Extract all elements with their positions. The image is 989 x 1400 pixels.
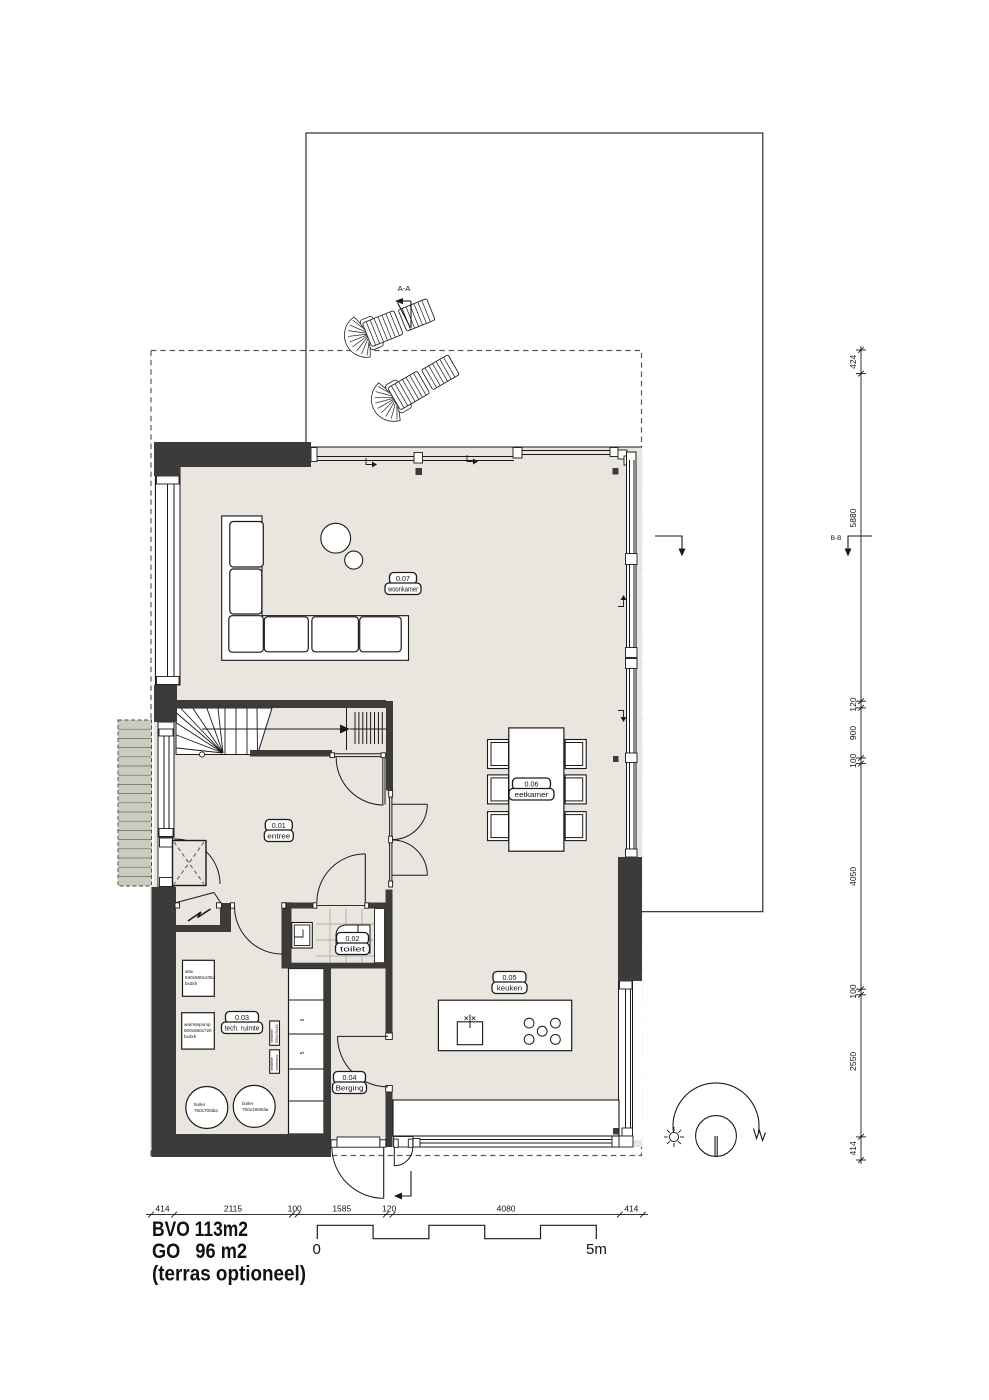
svg-text:wtw: wtw: [185, 969, 194, 974]
svg-text:warmtepomp: warmtepomp: [184, 1022, 211, 1027]
svg-text:0.04: 0.04: [343, 1073, 357, 1082]
svg-text:0.02: 0.02: [346, 934, 360, 943]
svg-text:414: 414: [624, 1204, 638, 1214]
svg-text:vloerverw: vloerverw: [275, 1054, 279, 1071]
svg-text:B-B: B-B: [831, 535, 842, 542]
svg-text:2550: 2550: [848, 1052, 858, 1071]
svg-text:100: 100: [848, 753, 858, 767]
svg-text:0.03: 0.03: [235, 1013, 249, 1022]
svg-text:2115: 2115: [224, 1204, 243, 1214]
svg-text:600x660x720: 600x660x720: [184, 1028, 212, 1033]
svg-text:5880: 5880: [848, 508, 858, 527]
svg-text:4080: 4080: [497, 1204, 516, 1214]
svg-text:0.01: 0.01: [272, 821, 286, 830]
svg-text:bxdxh: bxdxh: [185, 981, 198, 986]
svg-text:0.05: 0.05: [503, 973, 517, 982]
svg-text:120: 120: [382, 1204, 396, 1214]
svg-text:A-A: A-A: [398, 284, 411, 293]
svg-text:100: 100: [848, 984, 858, 998]
svg-text:0.07: 0.07: [396, 574, 410, 583]
svg-text:verdeler: verdeler: [270, 1057, 274, 1071]
svg-text:120: 120: [848, 697, 858, 711]
svg-text:500x75x45: 500x75x45: [275, 1024, 279, 1043]
svg-text:750x1900dia: 750x1900dia: [242, 1107, 269, 1112]
svg-text:keuken: keuken: [497, 984, 522, 993]
svg-text:tech. ruimte: tech. ruimte: [225, 1024, 260, 1033]
svg-text:900: 900: [848, 726, 858, 740]
svg-text:0.06: 0.06: [525, 780, 539, 789]
svg-text:GO 96 m2: GO 96 m2: [152, 1239, 247, 1263]
svg-text:toilet: toilet: [340, 945, 365, 954]
svg-text:(terras optioneel): (terras optioneel): [152, 1262, 306, 1286]
svg-text:414: 414: [848, 1141, 858, 1155]
svg-text:verdeler: verdeler: [270, 1029, 274, 1043]
svg-text:640x580x1064: 640x580x1064: [185, 975, 216, 980]
svg-text:BVO 113m2: BVO 113m2: [152, 1217, 248, 1241]
svg-text:bxdxh: bxdxh: [184, 1034, 197, 1039]
svg-text:5: 5: [300, 1051, 306, 1054]
svg-text:424: 424: [848, 354, 858, 368]
svg-text:eetkamer: eetkamer: [515, 790, 549, 799]
svg-text:0: 0: [313, 1241, 321, 1258]
svg-text:750x700dia: 750x700dia: [194, 1108, 218, 1113]
svg-text:4050: 4050: [848, 867, 858, 886]
svg-text:6: 6: [300, 1018, 306, 1021]
svg-text:5m: 5m: [586, 1241, 607, 1258]
svg-text:boiler: boiler: [194, 1102, 206, 1107]
svg-text:entree: entree: [267, 832, 290, 841]
svg-text:woonkamer: woonkamer: [387, 585, 418, 594]
svg-text:100: 100: [288, 1204, 302, 1214]
svg-text:1585: 1585: [332, 1204, 351, 1214]
svg-text:Berging: Berging: [336, 1084, 364, 1093]
svg-text:boiler: boiler: [242, 1101, 254, 1106]
svg-text:414: 414: [155, 1204, 169, 1214]
